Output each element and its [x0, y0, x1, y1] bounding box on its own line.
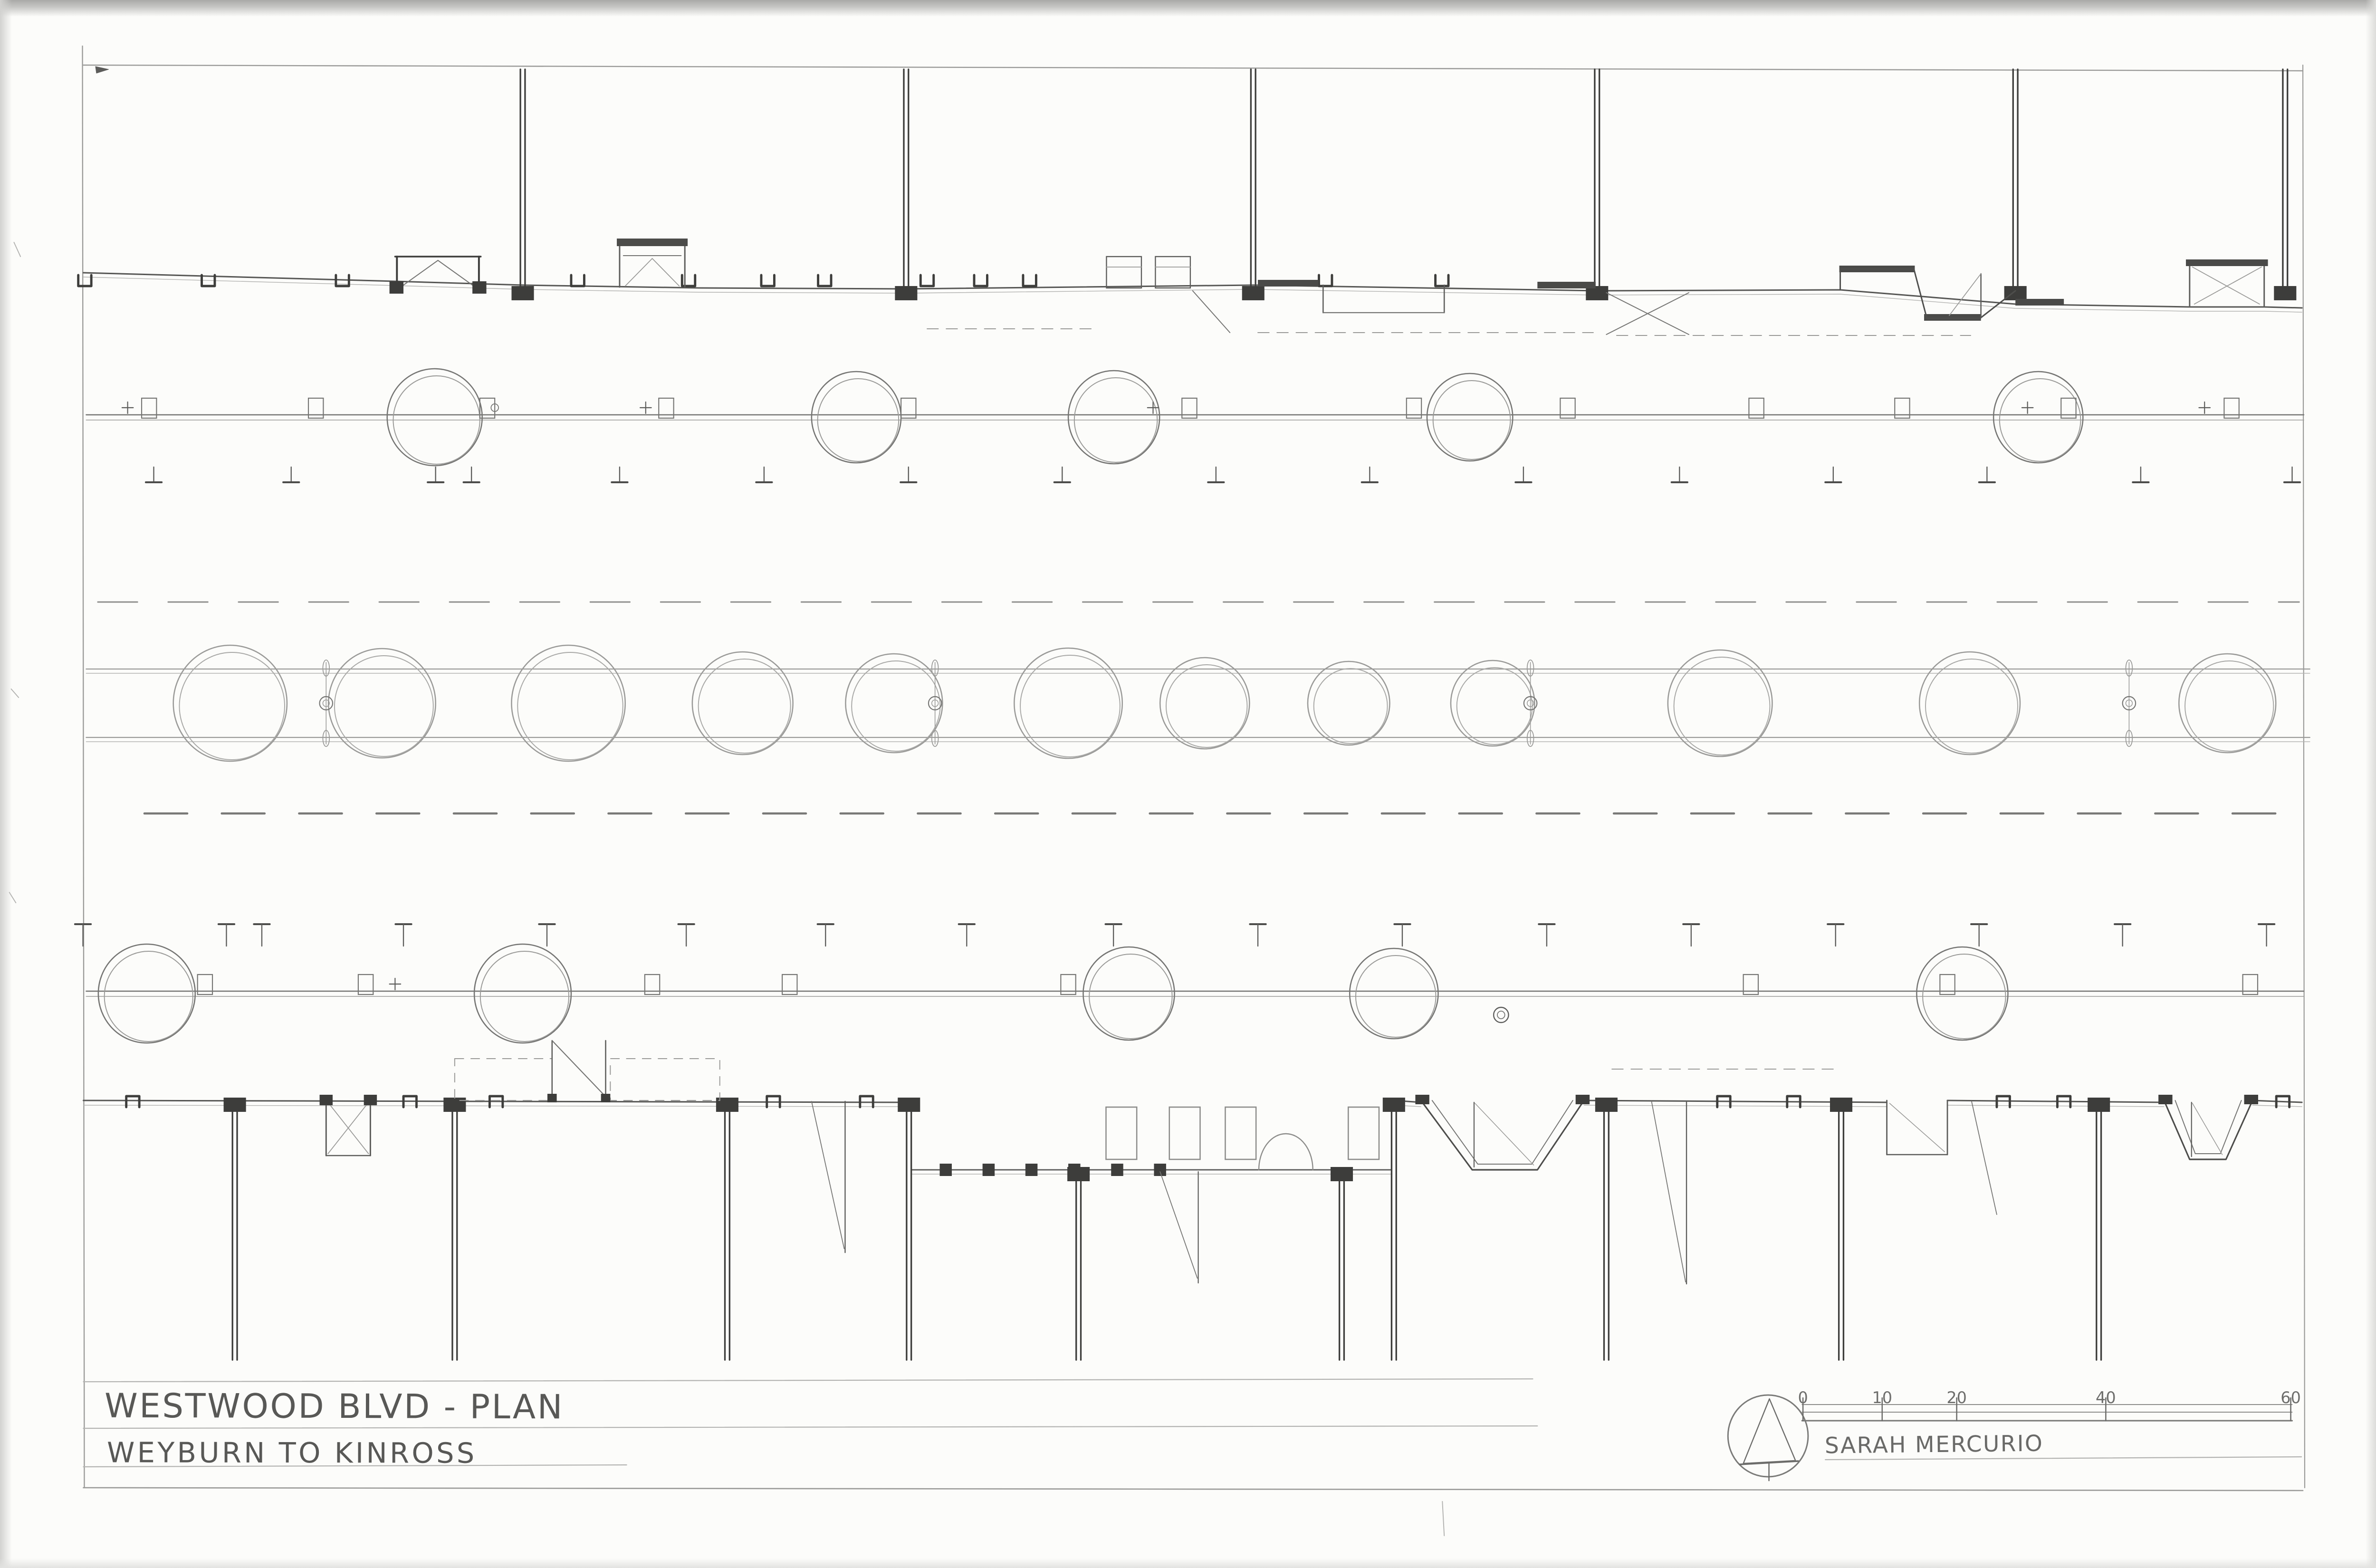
title-block-lines — [83, 1379, 2301, 1467]
north-arrow-icon — [1728, 1395, 1808, 1481]
scale-bar — [1802, 1398, 2292, 1421]
scanner-edge-right — [2366, 0, 2376, 1568]
north-buildings-group — [78, 69, 2302, 335]
upper-sidewalk-group — [86, 369, 2304, 482]
scanner-edge-left — [0, 0, 12, 1568]
scanner-edge-bottom — [0, 1558, 2376, 1568]
median-trees-group — [86, 645, 2309, 761]
scanner-edge-top — [0, 0, 2376, 17]
south-buildings-group — [83, 1041, 2302, 1360]
drawing-sheet: Westwood Blvd - Plan Weyburn to Kinross … — [0, 0, 2376, 1568]
sheet-border — [10, 46, 2305, 1536]
street-lane-lines — [98, 602, 2299, 813]
plan-drawing — [0, 0, 2376, 1568]
lower-sidewalk-group — [75, 924, 2304, 1043]
